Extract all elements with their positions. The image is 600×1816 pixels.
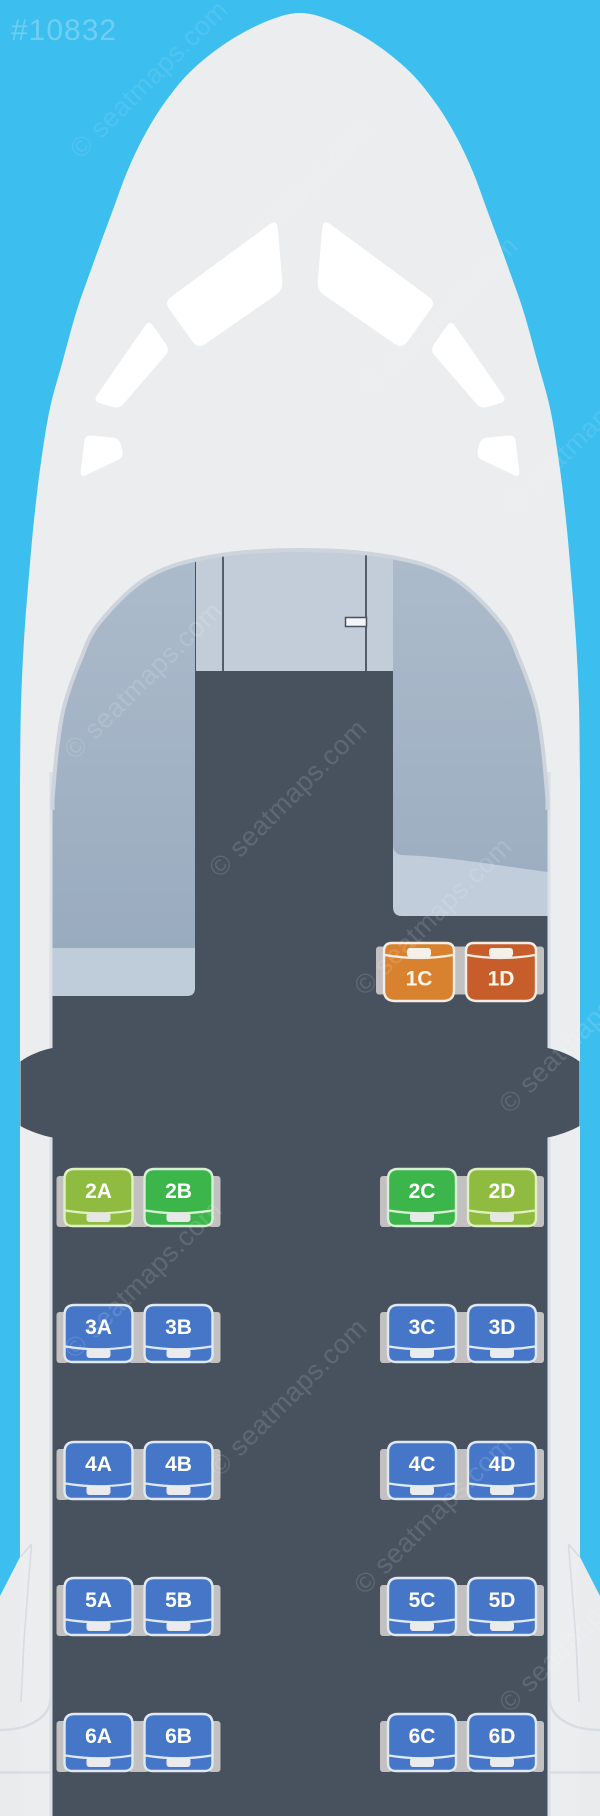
- svg-text:2B: 2B: [165, 1180, 192, 1203]
- svg-text:2D: 2D: [489, 1180, 516, 1203]
- svg-text:#10832: #10832: [11, 14, 117, 47]
- svg-text:1C: 1C: [406, 968, 433, 991]
- svg-text:5C: 5C: [409, 1589, 436, 1612]
- svg-text:3D: 3D: [489, 1316, 516, 1339]
- svg-text:6B: 6B: [165, 1725, 192, 1748]
- svg-text:2A: 2A: [85, 1180, 112, 1203]
- svg-text:6A: 6A: [85, 1725, 112, 1748]
- svg-text:5D: 5D: [489, 1589, 516, 1612]
- svg-text:4C: 4C: [409, 1453, 436, 1476]
- svg-text:3C: 3C: [409, 1316, 436, 1339]
- svg-text:6D: 6D: [489, 1725, 516, 1748]
- svg-text:5A: 5A: [85, 1589, 112, 1612]
- svg-text:2C: 2C: [409, 1180, 436, 1203]
- svg-text:5B: 5B: [165, 1589, 192, 1612]
- svg-text:4A: 4A: [85, 1453, 112, 1476]
- svg-text:4B: 4B: [165, 1453, 192, 1476]
- svg-text:1D: 1D: [488, 968, 515, 991]
- svg-text:3B: 3B: [165, 1316, 192, 1339]
- svg-text:6C: 6C: [409, 1725, 436, 1748]
